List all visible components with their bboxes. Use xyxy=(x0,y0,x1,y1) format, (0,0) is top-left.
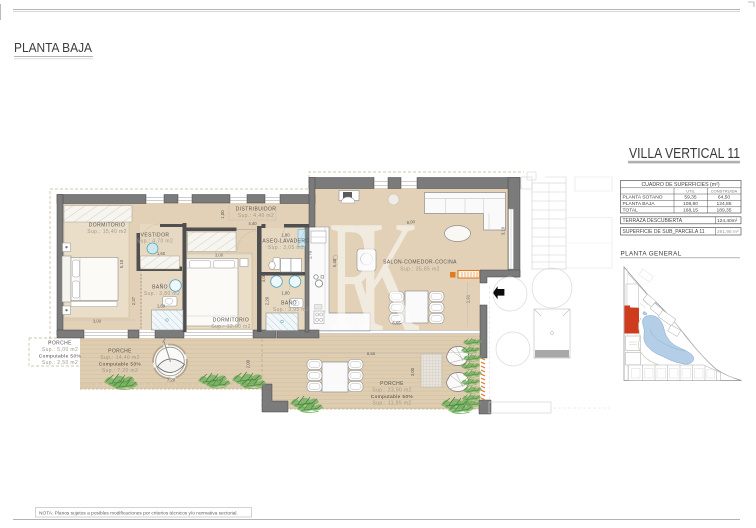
svg-text:168,15: 168,15 xyxy=(683,208,698,214)
svg-text:DISTRIBUIDOR: DISTRIBUIDOR xyxy=(236,207,277,213)
svg-text:TOTAL: TOTAL xyxy=(623,208,639,214)
svg-text:8,55: 8,55 xyxy=(367,351,376,356)
svg-text:Computable 50%: Computable 50% xyxy=(99,362,142,368)
svg-text:Sup.: 12,00 m2: Sup.: 12,00 m2 xyxy=(211,324,251,330)
svg-text:SALON-COMEDOR-COCINA: SALON-COMEDOR-COCINA xyxy=(383,260,457,266)
svg-text:NOTA: Planos sujetos a posible: NOTA: Planos sujetos a posibles modifica… xyxy=(39,510,238,516)
svg-text:Sup.: 15,40 m2: Sup.: 15,40 m2 xyxy=(87,229,127,235)
svg-text:PORCHE: PORCHE xyxy=(380,381,404,387)
svg-text:Sup.: 3,05 m2: Sup.: 3,05 m2 xyxy=(268,245,304,251)
svg-text:BAÑO: BAÑO xyxy=(152,284,168,291)
svg-text:PORCHE: PORCHE xyxy=(108,349,132,355)
svg-text:Sup.: 23,90 m2: Sup.: 23,90 m2 xyxy=(372,388,412,394)
svg-text:3,00: 3,00 xyxy=(93,319,102,324)
svg-text:1,80: 1,80 xyxy=(281,291,290,296)
svg-text:5,10: 5,10 xyxy=(119,259,124,268)
svg-text:1,00: 1,00 xyxy=(220,210,225,219)
svg-text:124,40m²: 124,40m² xyxy=(717,218,738,224)
svg-text:PORCHE: PORCHE xyxy=(48,341,72,347)
svg-text:Computable 50%: Computable 50% xyxy=(39,354,82,360)
svg-text:2,00: 2,00 xyxy=(246,359,251,368)
svg-text:PLANTA BAJA: PLANTA BAJA xyxy=(623,201,656,207)
svg-text:K: K xyxy=(356,187,420,365)
svg-text:3,19: 3,19 xyxy=(501,226,506,235)
svg-text:2,20: 2,20 xyxy=(265,296,270,305)
svg-text:Sup.: 4,70 m2: Sup.: 4,70 m2 xyxy=(137,239,173,245)
svg-text:Sup.: 2,50 m2: Sup.: 2,50 m2 xyxy=(42,360,78,366)
svg-text:3,00: 3,00 xyxy=(410,367,415,376)
svg-text:1,60: 1,60 xyxy=(157,251,166,256)
svg-text:VILLA VERTICAL 11: VILLA VERTICAL 11 xyxy=(629,146,740,162)
svg-text:Sup.: 3,80 m2: Sup.: 3,80 m2 xyxy=(144,291,180,297)
svg-text:3,00: 3,00 xyxy=(215,253,224,258)
svg-text:Sup.: 4,40 m2: Sup.: 4,40 m2 xyxy=(238,213,274,219)
svg-text:CUADRO DE SUPERFICIES (m²): CUADRO DE SUPERFICIES (m²) xyxy=(641,182,719,188)
svg-text:4,00: 4,00 xyxy=(261,273,266,282)
svg-text:PLANTA BAJA: PLANTA BAJA xyxy=(14,40,92,55)
svg-text:1,60: 1,60 xyxy=(157,304,166,309)
svg-text:281,95 m²: 281,95 m² xyxy=(717,229,739,235)
svg-text:Sup.: 11,95 m2: Sup.: 11,95 m2 xyxy=(372,401,411,407)
svg-text:7,20: 7,20 xyxy=(167,378,176,383)
svg-text:Sup.: 5,00 m2: Sup.: 5,00 m2 xyxy=(42,347,78,353)
svg-text:2,37: 2,37 xyxy=(131,296,136,305)
svg-text:64,50: 64,50 xyxy=(718,195,731,201)
svg-text:Sup.: 35,85 m2: Sup.: 35,85 m2 xyxy=(400,267,440,273)
svg-text:DORMITORIO: DORMITORIO xyxy=(213,318,249,324)
svg-text:SUPERFICIE DE SUB_PARCELA 11: SUPERFICIE DE SUB_PARCELA 11 xyxy=(623,229,705,235)
svg-text:Computable 50%: Computable 50% xyxy=(371,394,414,400)
svg-text:6,65: 6,65 xyxy=(392,321,401,326)
svg-text:DORMITORIO: DORMITORIO xyxy=(89,223,125,229)
svg-text:TERRAZA DESCUBIERTA: TERRAZA DESCUBIERTA xyxy=(623,218,683,224)
svg-text:UTIL: UTIL xyxy=(686,189,695,194)
svg-text:Sup.: 3,95 m2: Sup.: 3,95 m2 xyxy=(273,307,309,313)
svg-text:Sup.: 7,20 m2: Sup.: 7,20 m2 xyxy=(102,368,138,374)
svg-text:59,35: 59,35 xyxy=(684,195,697,201)
svg-text:BAÑO: BAÑO xyxy=(281,300,297,307)
svg-text:PLANTA SOTANO: PLANTA SOTANO xyxy=(623,195,663,201)
svg-text:189,35: 189,35 xyxy=(717,208,732,214)
svg-text:1,80: 1,80 xyxy=(281,233,290,238)
svg-text:PLANTA GENERAL: PLANTA GENERAL xyxy=(621,251,682,258)
svg-text:CONSTRUIDA: CONSTRUIDA xyxy=(711,189,738,194)
svg-text:4,40: 4,40 xyxy=(248,221,257,226)
svg-text:124,85: 124,85 xyxy=(717,201,732,207)
svg-text:108,80: 108,80 xyxy=(683,201,698,207)
svg-text:1,70: 1,70 xyxy=(308,250,313,259)
svg-text:Sup.: 14,40 m2: Sup.: 14,40 m2 xyxy=(100,355,140,361)
svg-text:1,91: 1,91 xyxy=(466,294,471,303)
svg-text:5,40: 5,40 xyxy=(332,258,337,267)
svg-text:ASEO-LAVADERO: ASEO-LAVADERO xyxy=(262,239,309,245)
